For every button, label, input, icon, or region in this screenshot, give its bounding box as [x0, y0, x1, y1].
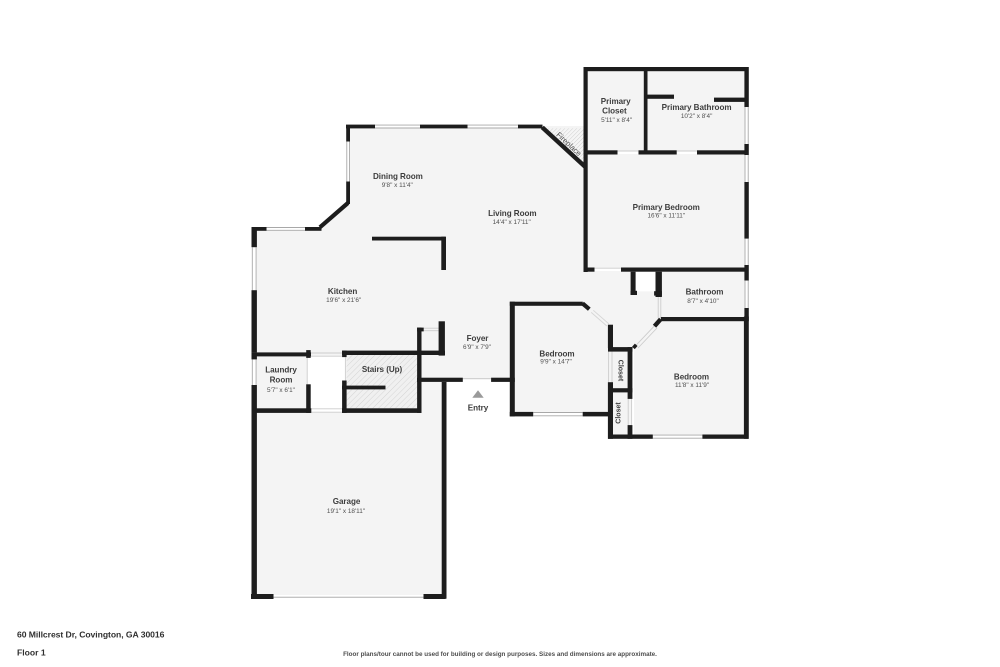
- svg-text:Dining Room: Dining Room: [373, 172, 423, 181]
- svg-text:60 Millcrest Dr, Covington, GA: 60 Millcrest Dr, Covington, GA 30016: [17, 630, 165, 640]
- svg-text:Closet: Closet: [602, 106, 627, 115]
- svg-text:11'8" x 11'9": 11'8" x 11'9": [675, 382, 709, 389]
- svg-text:Floor 1: Floor 1: [17, 648, 46, 658]
- svg-text:Bedroom: Bedroom: [539, 349, 574, 358]
- svg-text:Bedroom: Bedroom: [674, 372, 709, 381]
- svg-text:6'9" x 7'9": 6'9" x 7'9": [463, 344, 491, 351]
- svg-text:Kitchen: Kitchen: [328, 287, 357, 296]
- svg-text:19'1" x 18'11": 19'1" x 18'11": [327, 508, 365, 515]
- svg-text:Closet: Closet: [615, 402, 622, 424]
- svg-text:Primary Bathroom: Primary Bathroom: [662, 103, 732, 112]
- svg-text:9'8" x 11'4": 9'8" x 11'4": [382, 182, 413, 189]
- svg-text:Entry: Entry: [468, 403, 489, 412]
- svg-text:Primary: Primary: [601, 97, 631, 106]
- svg-text:Living Room: Living Room: [488, 209, 536, 218]
- svg-text:Laundry: Laundry: [265, 365, 297, 374]
- svg-text:Stairs (Up): Stairs (Up): [362, 365, 403, 374]
- svg-text:5'11" x 8'4": 5'11" x 8'4": [601, 117, 632, 124]
- svg-text:5'7" x 6'1": 5'7" x 6'1": [267, 387, 295, 394]
- svg-text:8'7" x 4'10": 8'7" x 4'10": [687, 298, 719, 305]
- svg-text:Primary Bedroom: Primary Bedroom: [633, 203, 700, 212]
- svg-text:19'6" x 21'6": 19'6" x 21'6": [326, 297, 361, 304]
- svg-text:Closet: Closet: [617, 360, 624, 382]
- svg-text:Floor plans/tour cannot be use: Floor plans/tour cannot be used for buil…: [343, 651, 657, 658]
- svg-text:14'4" x 17'11": 14'4" x 17'11": [493, 219, 531, 226]
- svg-text:9'9" x 14'7": 9'9" x 14'7": [540, 359, 572, 366]
- svg-text:Bathroom: Bathroom: [686, 287, 724, 296]
- svg-text:Foyer: Foyer: [467, 334, 490, 343]
- svg-text:Garage: Garage: [333, 497, 361, 506]
- svg-text:16'6" x 11'11": 16'6" x 11'11": [647, 213, 685, 220]
- svg-text:10'2" x 8'4": 10'2" x 8'4": [681, 113, 713, 120]
- svg-text:Room: Room: [270, 376, 293, 385]
